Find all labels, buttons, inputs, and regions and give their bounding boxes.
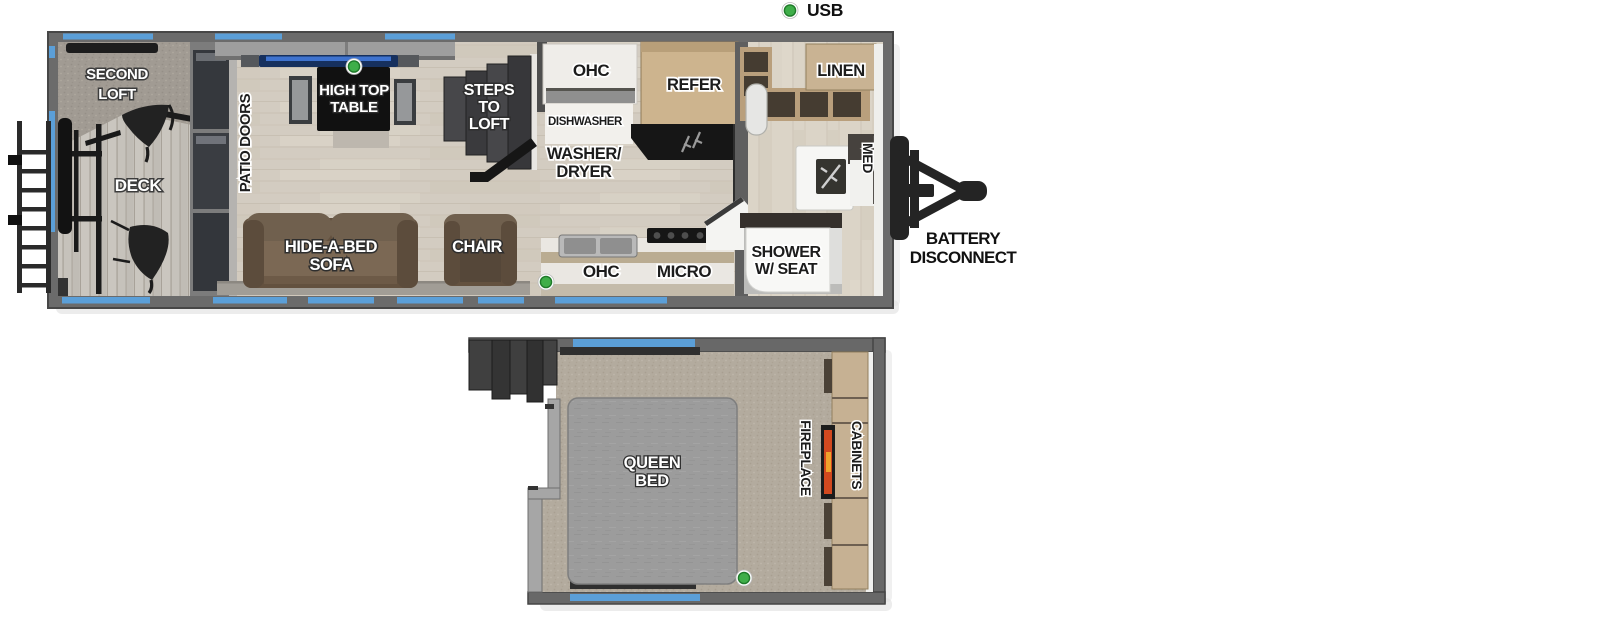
svg-text:STEPS: STEPS bbox=[464, 82, 515, 99]
svg-text:WASHER/: WASHER/ bbox=[547, 145, 622, 163]
svg-text:TO: TO bbox=[478, 99, 499, 116]
svg-text:OHC: OHC bbox=[583, 262, 620, 281]
svg-text:HIDE-A-BED: HIDE-A-BED bbox=[285, 238, 378, 256]
svg-text:MICRO: MICRO bbox=[657, 262, 711, 281]
svg-text:DECK: DECK bbox=[115, 176, 163, 195]
svg-text:DRYER: DRYER bbox=[556, 163, 612, 181]
svg-text:LINEN: LINEN bbox=[817, 62, 865, 80]
svg-text:CHAIR: CHAIR bbox=[452, 238, 502, 256]
svg-text:LOFT: LOFT bbox=[469, 116, 510, 133]
svg-text:SOFA: SOFA bbox=[310, 256, 354, 274]
svg-text:QUEEN: QUEEN bbox=[624, 454, 681, 472]
svg-text:REFER: REFER bbox=[667, 76, 721, 94]
svg-text:BATTERY: BATTERY bbox=[926, 229, 1001, 248]
svg-text:DISHWASHER: DISHWASHER bbox=[548, 116, 623, 128]
svg-text:TABLE: TABLE bbox=[330, 99, 378, 116]
svg-text:PATIO DOORS: PATIO DOORS bbox=[237, 93, 254, 192]
svg-text:OHC: OHC bbox=[573, 61, 610, 80]
svg-text:W/ SEAT: W/ SEAT bbox=[755, 261, 818, 278]
svg-text:SHOWER: SHOWER bbox=[752, 244, 822, 261]
svg-text:MED: MED bbox=[860, 143, 876, 173]
svg-text:FIREPLACE: FIREPLACE bbox=[798, 420, 814, 496]
svg-text:DISCONNECT: DISCONNECT bbox=[910, 248, 1018, 267]
svg-text:CABINETS: CABINETS bbox=[849, 421, 865, 489]
svg-text:HIGH TOP: HIGH TOP bbox=[319, 82, 389, 99]
svg-text:SECOND: SECOND bbox=[86, 66, 148, 83]
svg-text:LOFT: LOFT bbox=[98, 86, 136, 103]
svg-text:USB: USB bbox=[807, 0, 843, 20]
svg-text:BED: BED bbox=[635, 472, 669, 490]
